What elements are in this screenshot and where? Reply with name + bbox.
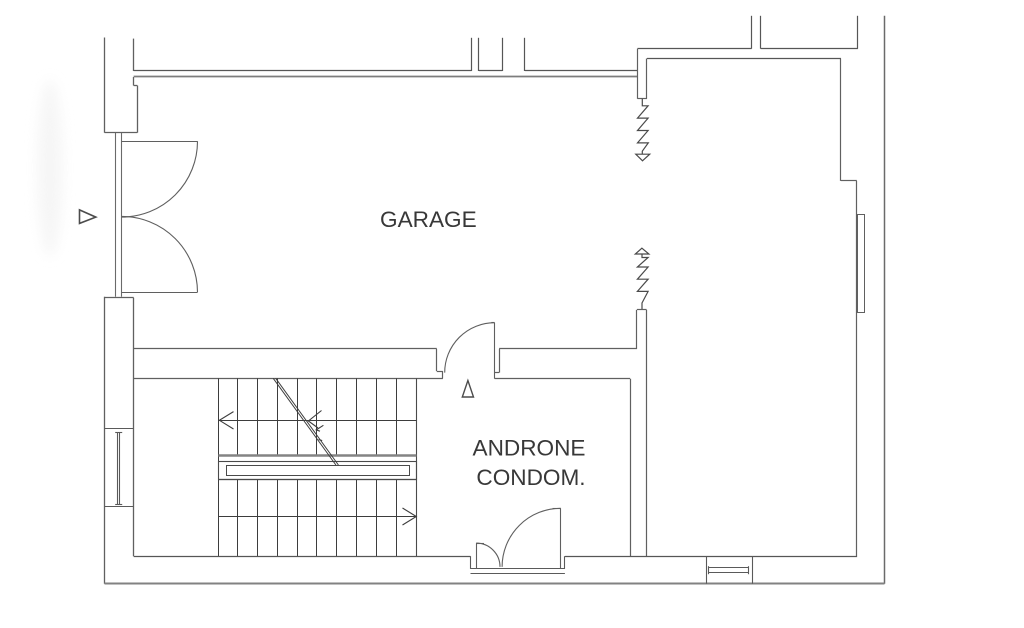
svg-text:ANDRONE: ANDRONE — [473, 435, 586, 460]
svg-text:GARAGE: GARAGE — [380, 207, 477, 232]
svg-text:CONDOM.: CONDOM. — [476, 465, 585, 490]
